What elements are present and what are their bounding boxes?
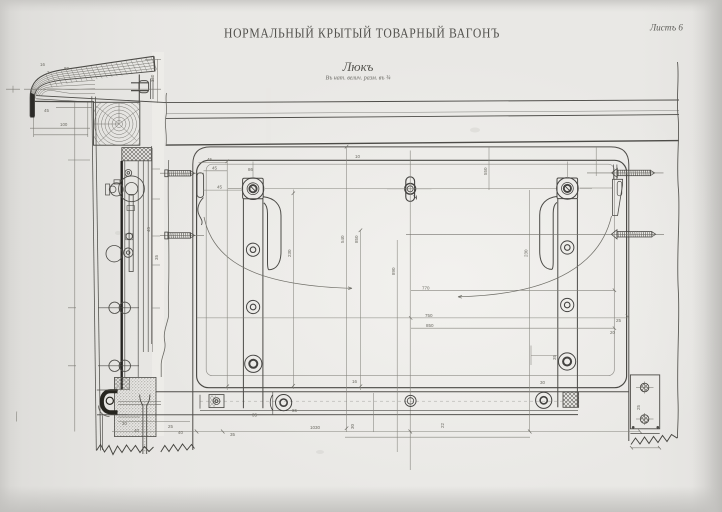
svg-text:45: 45 — [217, 185, 223, 190]
svg-text:20: 20 — [610, 330, 616, 335]
svg-text:40: 40 — [134, 428, 139, 433]
svg-text:750: 750 — [425, 313, 433, 318]
svg-text:100: 100 — [60, 122, 68, 127]
svg-text:35: 35 — [552, 354, 557, 360]
svg-text:850: 850 — [426, 323, 434, 328]
svg-text:35: 35 — [154, 255, 159, 260]
svg-text:45: 45 — [44, 108, 49, 113]
svg-text:22: 22 — [440, 422, 445, 428]
svg-text:25: 25 — [168, 424, 173, 429]
svg-text:НОРМАЛЬНЫЙ КРЫТЫЙ ТОВАРНЫЙ ВАГ: НОРМАЛЬНЫЙ КРЫТЫЙ ТОВАРНЫЙ ВАГОНЪ — [224, 25, 500, 42]
svg-text:45: 45 — [207, 157, 213, 162]
svg-text:30: 30 — [122, 421, 127, 426]
svg-text:350: 350 — [150, 74, 155, 82]
svg-text:Люкъ: Люкъ — [342, 59, 374, 74]
svg-text:25: 25 — [636, 404, 641, 410]
svg-text:86: 86 — [292, 408, 298, 413]
svg-text:30: 30 — [540, 380, 546, 385]
svg-text:770: 770 — [422, 285, 430, 290]
svg-text:Листъ 6: Листъ 6 — [649, 23, 684, 33]
svg-text:Въ нат. велич. разм. въ ¾: Въ нат. велич. разм. въ ¾ — [326, 76, 391, 82]
svg-text:10: 10 — [355, 154, 361, 159]
svg-text:230: 230 — [523, 249, 528, 257]
svg-text:550: 550 — [483, 167, 488, 175]
svg-text:540: 540 — [340, 235, 345, 243]
svg-text:30: 30 — [350, 423, 355, 429]
svg-text:35: 35 — [230, 432, 236, 437]
svg-text:16: 16 — [40, 62, 45, 67]
svg-text:1030: 1030 — [310, 425, 321, 430]
svg-text:45: 45 — [146, 227, 151, 232]
svg-text:25: 25 — [616, 318, 622, 323]
svg-text:86: 86 — [248, 167, 254, 172]
svg-text:45: 45 — [212, 165, 218, 170]
svg-text:230: 230 — [287, 249, 292, 257]
svg-text:80: 80 — [64, 66, 69, 71]
svg-text:35: 35 — [252, 413, 258, 418]
svg-text:40: 40 — [178, 430, 183, 435]
svg-text:890: 890 — [391, 267, 396, 275]
svg-text:16: 16 — [352, 379, 358, 384]
svg-text:850: 850 — [354, 235, 359, 243]
